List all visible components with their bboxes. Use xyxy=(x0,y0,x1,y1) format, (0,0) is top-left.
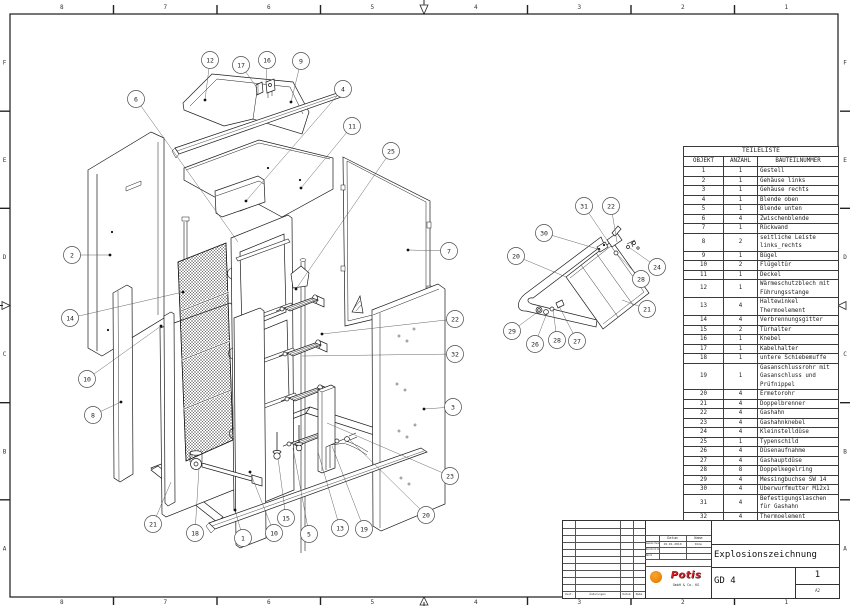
title-block: Zust. Änderungen Datum Name Datum Name G… xyxy=(562,520,840,599)
approval-block: Datum Name Gezeichnet Kontrolliert Norm … xyxy=(645,521,712,598)
parts-row: 11Gestell xyxy=(684,167,839,177)
parts-list-title: TEILELISTE xyxy=(684,147,839,157)
svg-text:22: 22 xyxy=(607,202,615,210)
balloon-29: 29 xyxy=(504,311,540,340)
parts-row: 294Messingbuchse SW 14 xyxy=(684,475,839,485)
rev-label-datum: Datum xyxy=(620,591,633,598)
balloon-26: 26 xyxy=(527,313,548,353)
parts-row: 224Gashahn xyxy=(684,409,839,419)
parts-row: 244Kleinstelldüse xyxy=(684,428,839,438)
parts-row: 234Gashahnknebel xyxy=(684,418,839,428)
col-header-bauteilnummer: BAUTEILNUMMER xyxy=(758,157,839,167)
svg-text:4: 4 xyxy=(474,599,478,606)
svg-text:28: 28 xyxy=(553,336,561,344)
svg-text:F: F xyxy=(843,60,847,67)
drawing-number-cell: GD 4 xyxy=(711,567,796,598)
exploded-assembly xyxy=(88,74,649,553)
svg-text:3: 3 xyxy=(451,403,455,411)
svg-text:D: D xyxy=(3,254,7,261)
side-strip-left xyxy=(113,285,133,482)
col-header-anzahl: ANZAHL xyxy=(724,157,758,167)
svg-text:26: 26 xyxy=(531,340,539,348)
svg-text:1: 1 xyxy=(784,599,788,606)
parts-row: 314Befestigungslaschen für Gashahn xyxy=(684,494,839,512)
logo-brand-text: Potis xyxy=(663,570,709,581)
right-housing-panel xyxy=(372,284,445,531)
svg-text:20: 20 xyxy=(422,511,430,519)
drawing-title: Explosionszeichnung xyxy=(714,550,817,560)
svg-text:3: 3 xyxy=(577,4,581,11)
parts-row: 144Verbrennungsgitter xyxy=(684,316,839,326)
svg-text:19: 19 xyxy=(360,525,368,533)
svg-text:7: 7 xyxy=(163,599,167,606)
parts-row: 274Gashauptdüse xyxy=(684,456,839,466)
parts-list-table: TEILELISTE OBJEKT ANZAHL BAUTEILNUMMER 1… xyxy=(683,146,839,522)
parts-row: 31Gehäuse rechts xyxy=(684,186,839,196)
svg-text:32: 32 xyxy=(451,350,459,358)
parts-row: 191Gasanschlussrohr mit Gasanschluss und… xyxy=(684,363,839,390)
parts-row: 102Flügeltür xyxy=(684,261,839,271)
svg-text:25: 25 xyxy=(387,147,395,155)
svg-text:17: 17 xyxy=(237,61,245,69)
svg-text:6: 6 xyxy=(267,4,271,11)
svg-text:1: 1 xyxy=(241,534,245,542)
approval-date-value: 19.01.2010 xyxy=(659,541,686,547)
parts-row: 51Blende unten xyxy=(684,205,839,215)
svg-text:1: 1 xyxy=(784,4,788,11)
svg-text:2: 2 xyxy=(70,251,74,259)
parts-row: 121Wärmeschutzblech mit Führungsstange xyxy=(684,280,839,298)
svg-text:6: 6 xyxy=(267,599,271,606)
svg-text:15: 15 xyxy=(282,514,290,522)
svg-text:27: 27 xyxy=(573,337,581,345)
svg-text:29: 29 xyxy=(508,327,516,335)
svg-text:16: 16 xyxy=(263,56,271,64)
svg-text:9: 9 xyxy=(299,57,303,65)
parts-row: 264Düsenaufnahme xyxy=(684,447,839,457)
svg-text:12: 12 xyxy=(206,56,214,64)
svg-text:2: 2 xyxy=(681,4,685,11)
parts-row: 161Knebel xyxy=(684,335,839,345)
burner-subassembly xyxy=(518,226,649,329)
revision-table: Zust. Änderungen Datum Name xyxy=(563,521,646,598)
balloon-31: 31 xyxy=(576,198,608,241)
svg-text:24: 24 xyxy=(653,263,661,271)
parts-row: 288Doppelkegelring xyxy=(684,466,839,476)
svg-text:30: 30 xyxy=(540,229,548,237)
svg-text:C: C xyxy=(843,351,847,358)
parts-row: 82seitliche Leiste links_rechts xyxy=(684,233,839,251)
drawing-sheet: 8877665544332211FFEEDDCCBBAA xyxy=(0,0,850,606)
svg-text:5: 5 xyxy=(370,4,374,11)
rev-label-aenderungen: Änderungen xyxy=(575,591,620,598)
sheet-number: 1 xyxy=(796,567,839,585)
parts-row: 181untere Schiebemuffe xyxy=(684,354,839,364)
svg-text:8: 8 xyxy=(60,599,64,606)
svg-text:E: E xyxy=(3,157,7,164)
svg-text:A: A xyxy=(3,545,7,552)
thin-strip xyxy=(164,312,175,506)
parts-row: 134Haltewinkel Thermoelement xyxy=(684,298,839,316)
parts-row: 214Doppelbrenner xyxy=(684,399,839,409)
svg-text:10: 10 xyxy=(83,375,91,383)
approval-row-norm: Norm xyxy=(646,553,659,559)
svg-text:18: 18 xyxy=(191,529,199,537)
svg-text:2: 2 xyxy=(681,599,685,606)
svg-text:7: 7 xyxy=(447,247,451,255)
svg-text:31: 31 xyxy=(580,202,588,210)
svg-text:4: 4 xyxy=(474,4,478,11)
parts-row: 71Rückwand xyxy=(684,224,839,234)
svg-text:3: 3 xyxy=(577,599,581,606)
parts-row: 64Zwischenblende xyxy=(684,214,839,224)
title-block-empty-row xyxy=(711,521,839,545)
svg-text:4: 4 xyxy=(341,85,345,93)
svg-text:23: 23 xyxy=(446,472,454,480)
svg-text:C: C xyxy=(3,351,7,358)
svg-text:5: 5 xyxy=(307,530,311,538)
svg-text:E: E xyxy=(843,157,847,164)
svg-text:14: 14 xyxy=(66,314,74,322)
parts-row: 41Blende oben xyxy=(684,195,839,205)
logo-company-suffix: GmbH & Co. KG xyxy=(661,583,711,587)
svg-text:7: 7 xyxy=(163,4,167,11)
svg-text:22: 22 xyxy=(451,315,459,323)
svg-text:A: A xyxy=(843,545,847,552)
parts-row: 21Gehäuse links xyxy=(684,176,839,186)
svg-text:F: F xyxy=(3,60,7,67)
combustion-grid xyxy=(178,217,233,461)
drawing-number: GD 4 xyxy=(714,576,736,586)
svg-text:10: 10 xyxy=(270,529,278,537)
parts-row: 204Ermetorohr xyxy=(684,390,839,400)
svg-text:21: 21 xyxy=(149,520,157,528)
parts-row: 251Typenschild xyxy=(684,437,839,447)
parts-row: 304Überwurfmutter M12x1 xyxy=(684,485,839,495)
rev-label-name: Name xyxy=(633,591,645,598)
company-logo: Potis GmbH & Co. KG xyxy=(647,569,709,595)
svg-text:5: 5 xyxy=(370,599,374,606)
rev-label-zust: Zust. xyxy=(563,591,575,598)
svg-text:13: 13 xyxy=(336,524,344,532)
svg-text:20: 20 xyxy=(512,252,520,260)
parts-list-body: 11Gestell21Gehäuse links31Gehäuse rechts… xyxy=(684,167,839,522)
col-header-objekt: OBJEKT xyxy=(684,157,724,167)
svg-text:B: B xyxy=(843,448,847,455)
svg-text:11: 11 xyxy=(348,122,356,130)
svg-text:8: 8 xyxy=(60,4,64,11)
svg-text:28: 28 xyxy=(637,275,645,283)
drawing-title-cell: Explosionszeichnung xyxy=(711,544,839,568)
sheet-format: A2 xyxy=(796,585,839,598)
parts-row: 152Türhalter xyxy=(684,325,839,335)
approval-name-value: Dimu xyxy=(686,541,711,547)
title-block-right: Explosionszeichnung GD 4 1 A2 xyxy=(711,521,839,598)
parts-row: 91Bügel xyxy=(684,251,839,261)
sheet-cell: 1 A2 xyxy=(796,567,839,598)
balloon-24: 24 xyxy=(630,248,666,276)
svg-text:D: D xyxy=(843,254,847,261)
logo-icon xyxy=(650,571,662,583)
svg-text:6: 6 xyxy=(134,95,138,103)
svg-text:B: B xyxy=(3,448,7,455)
parts-row: 111Deckel xyxy=(684,270,839,280)
svg-text:8: 8 xyxy=(91,411,95,419)
parts-row: 171Kabelhalter xyxy=(684,344,839,354)
svg-text:21: 21 xyxy=(643,305,651,313)
